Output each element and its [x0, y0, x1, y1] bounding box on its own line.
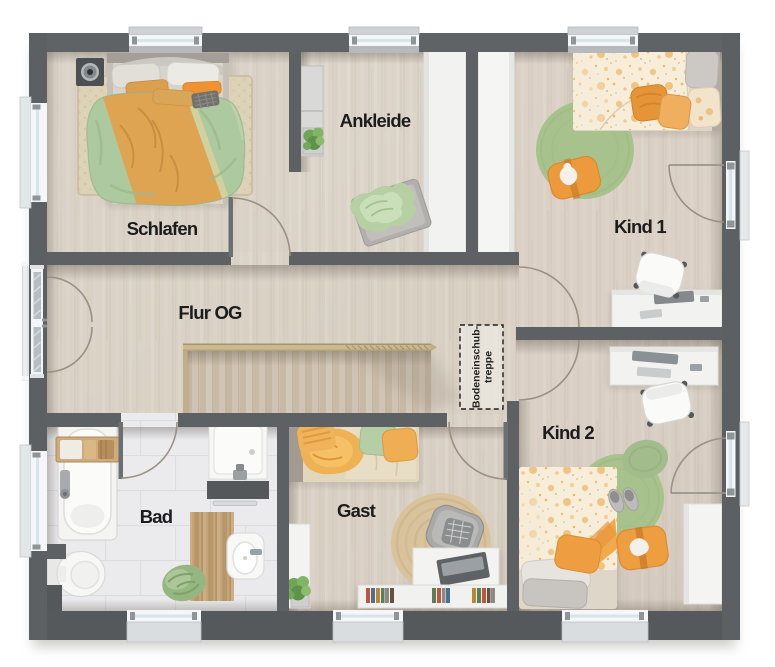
svg-text:Bodeneinschub-: Bodeneinschub- [471, 325, 483, 408]
svg-text:Ankleide: Ankleide [340, 110, 411, 131]
svg-text:Kind 2: Kind 2 [542, 422, 594, 443]
svg-text:treppe: treppe [483, 351, 495, 383]
svg-text:Schlafen: Schlafen [127, 218, 198, 239]
svg-text:Bad: Bad [140, 506, 173, 527]
svg-text:Kind 1: Kind 1 [614, 216, 666, 237]
svg-text:Gast: Gast [337, 500, 376, 521]
svg-text:Flur OG: Flur OG [178, 302, 242, 323]
